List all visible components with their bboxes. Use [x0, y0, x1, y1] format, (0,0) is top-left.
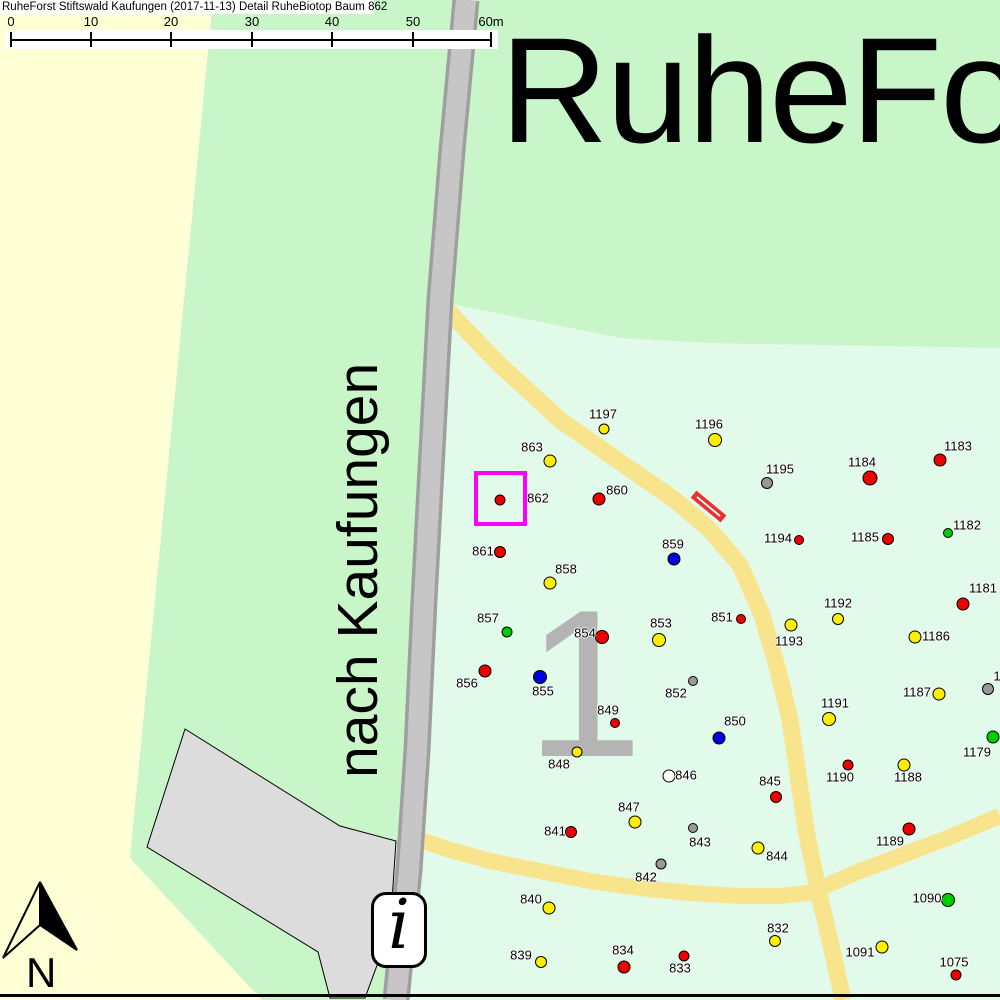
tree-label: 863: [521, 440, 543, 455]
tree-marker[interactable]: [543, 902, 556, 915]
tree-label: 1183: [944, 439, 972, 454]
tree-marker[interactable]: [951, 970, 962, 981]
tree-label: 1090: [913, 891, 942, 906]
tree-marker[interactable]: [618, 961, 631, 974]
scale-bar-tick: [412, 32, 414, 47]
tree-label: 1186: [922, 629, 950, 644]
scale-bar-tick-label: 20: [164, 14, 178, 29]
tree-label: 855: [532, 684, 554, 699]
scale-bar: [5, 30, 498, 49]
tree-marker[interactable]: [688, 676, 698, 686]
tree-label: 833: [669, 961, 691, 976]
scale-bar-tick-label: 10: [84, 14, 98, 29]
north-arrow-label: N: [26, 952, 56, 994]
tree-marker[interactable]: [479, 665, 492, 678]
tree-marker[interactable]: [863, 471, 878, 486]
tree-label: 848: [548, 757, 570, 772]
tree-marker[interactable]: [599, 424, 610, 435]
tree-label: 842: [635, 870, 657, 885]
tree-label: 1075: [940, 955, 969, 970]
tree-label: 1187: [903, 685, 931, 700]
tree-label: 1191: [821, 696, 849, 711]
tree-label: 847: [618, 800, 640, 815]
info-point-icon[interactable]: i: [371, 892, 427, 968]
tree-marker[interactable]: [708, 433, 722, 447]
tree-label: 858: [555, 562, 577, 577]
scale-bar-tick-label: 50: [406, 14, 420, 29]
tree-marker[interactable]: [882, 533, 894, 545]
scale-bar-tick-label: 60m: [478, 14, 503, 29]
map-title-text: RuheForst Stiftswald Kaufungen (2017-11-…: [2, 1, 387, 13]
tree-marker[interactable]: [688, 823, 698, 833]
tree-label: 1184: [848, 455, 876, 470]
tree-label: 1192: [824, 596, 852, 611]
tree-marker[interactable]: [770, 791, 782, 803]
scale-bar-tick: [331, 32, 333, 47]
tree-label: 1182: [953, 518, 981, 533]
tree-marker[interactable]: [502, 627, 513, 638]
tree-label: 840: [520, 892, 542, 907]
scale-bar-tick-label: 30: [245, 14, 259, 29]
map-title-bar: RuheForst Stiftswald Kaufungen (2017-11-…: [0, 0, 374, 14]
tree-marker[interactable]: [565, 826, 577, 838]
scale-bar-tick: [10, 32, 12, 47]
tree-label: 1091: [846, 945, 875, 960]
tree-label: 860: [606, 483, 628, 498]
tree-marker[interactable]: [943, 528, 953, 538]
tree-marker[interactable]: [544, 455, 557, 468]
scale-bar-tick: [490, 32, 492, 47]
tree-label: 844: [766, 849, 788, 864]
scale-bar-tick-label: 0: [7, 14, 14, 29]
tree-marker[interactable]: [761, 477, 773, 489]
tree-marker[interactable]: [533, 670, 547, 684]
tree-marker[interactable]: [668, 553, 681, 566]
tree-marker[interactable]: [494, 546, 506, 558]
tree-marker[interactable]: [544, 577, 557, 590]
tree-marker[interactable]: [982, 683, 994, 695]
map-border-line: [0, 994, 1000, 997]
tree-marker[interactable]: [822, 712, 836, 726]
tree-marker[interactable]: [752, 842, 765, 855]
tree-marker[interactable]: [909, 631, 922, 644]
tree-marker[interactable]: [652, 633, 666, 647]
tree-marker[interactable]: [832, 613, 844, 625]
tree-label: 1185: [851, 530, 879, 545]
tree-marker[interactable]: [941, 893, 955, 907]
tree-label: 1194: [764, 531, 792, 546]
info-icon-glyph: i: [388, 892, 410, 960]
tree-label: 850: [724, 714, 746, 729]
tree-label: 1179: [963, 745, 991, 760]
tree-label: 1193: [775, 634, 803, 649]
map-canvas[interactable]: RuheForst nach Kaufungen 1 1197863119686…: [0, 0, 1000, 1000]
tree-label: 849: [597, 703, 619, 718]
tree-label: 1181: [969, 581, 997, 596]
tree-marker[interactable]: [535, 956, 547, 968]
tree-label: 861: [472, 544, 494, 559]
tree-marker[interactable]: [903, 823, 916, 836]
scale-bar-tick: [251, 32, 253, 47]
tree-label: 1188: [894, 770, 922, 785]
tree-label: 851: [711, 610, 733, 625]
tree-label: 841: [544, 824, 566, 839]
tree-label: 1197: [589, 407, 617, 422]
tree-label: 832: [767, 921, 789, 936]
tree-marker[interactable]: [713, 732, 726, 745]
tree-marker[interactable]: [663, 770, 676, 783]
scale-bar-numbers: 0102030405060m: [0, 14, 520, 29]
tree-label: 843: [689, 835, 711, 850]
tree-label: 1190: [826, 770, 854, 785]
tree-label: 839: [510, 948, 532, 963]
tree-marker[interactable]: [595, 630, 609, 644]
scale-bar-tick-label: 40: [325, 14, 339, 29]
tree-marker[interactable]: [736, 614, 746, 624]
tree-marker[interactable]: [610, 718, 620, 728]
tree-label: 852: [665, 686, 687, 701]
tree-label: 846: [675, 768, 697, 783]
tree-marker[interactable]: [957, 598, 970, 611]
tree-marker[interactable]: [934, 454, 947, 467]
tree-label: 834: [612, 943, 634, 958]
tree-marker[interactable]: [769, 935, 781, 947]
tree-marker[interactable]: [656, 859, 667, 870]
tree-marker[interactable]: [629, 816, 642, 829]
tree-label: 859: [662, 537, 684, 552]
tree-label: 845: [759, 774, 781, 789]
scale-bar-tick: [170, 32, 172, 47]
tree-label: 857: [477, 611, 499, 626]
tree-label: 1196: [695, 417, 723, 432]
tree-marker[interactable]: [785, 619, 798, 632]
tree-label: 862: [527, 491, 549, 506]
tree-label: 1: [993, 669, 1000, 684]
tree-marker[interactable]: [987, 731, 1000, 744]
tree-marker[interactable]: [572, 747, 583, 758]
tree-label: 856: [456, 676, 478, 691]
tree-marker[interactable]: [593, 493, 606, 506]
tree-label: 854: [574, 626, 596, 641]
tree-marker[interactable]: [794, 535, 804, 545]
tree-marker[interactable]: [933, 688, 946, 701]
tree-label: 1195: [766, 462, 794, 477]
selected-tree-box: [474, 471, 527, 526]
tree-label: 853: [650, 616, 672, 631]
tree-marker[interactable]: [876, 941, 889, 954]
tree-label: 1189: [876, 834, 904, 849]
scale-bar-tick: [90, 32, 92, 47]
